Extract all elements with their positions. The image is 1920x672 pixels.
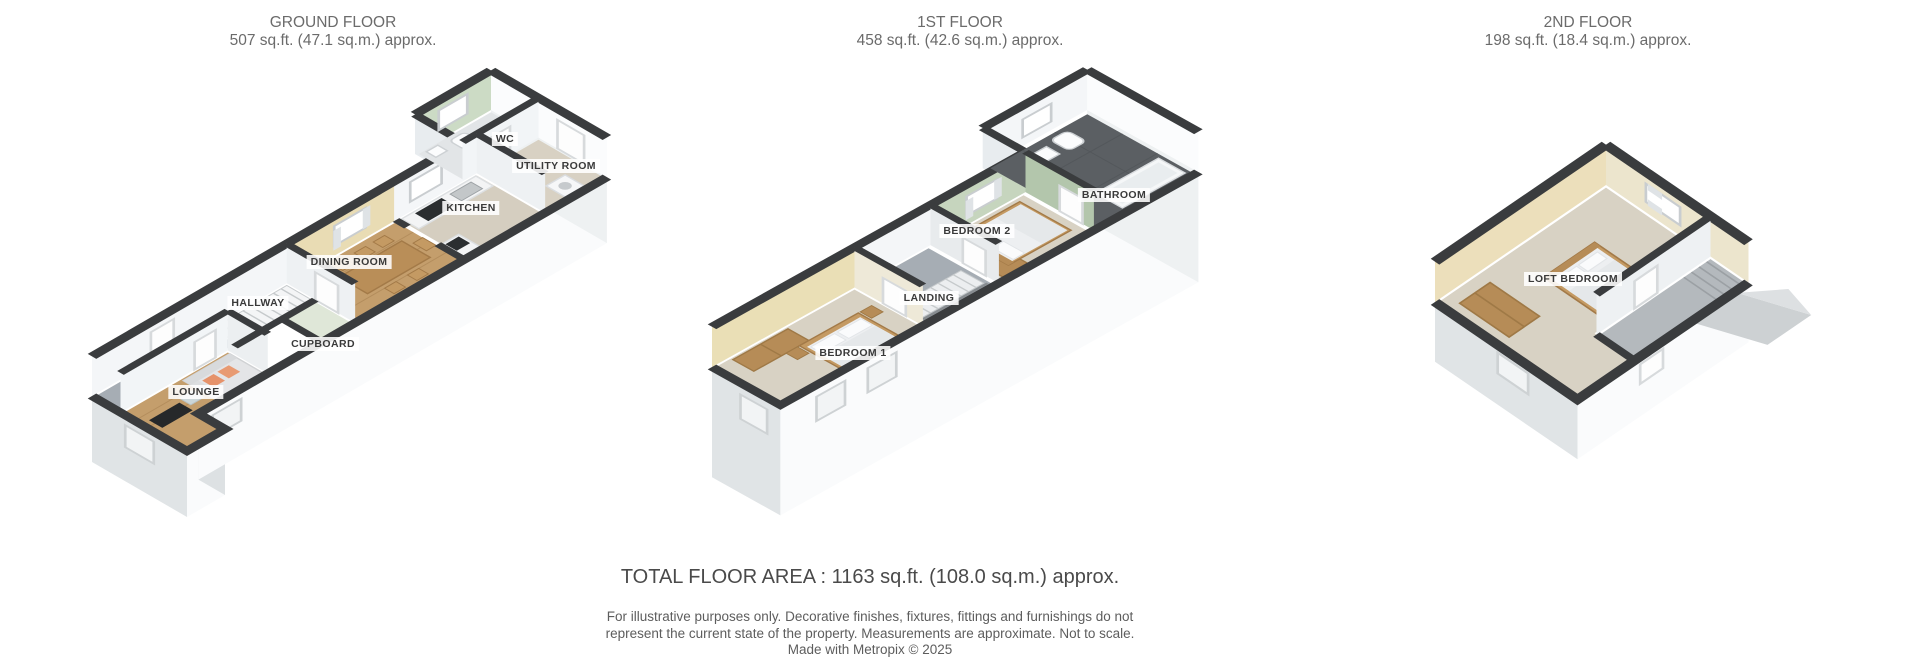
room-label-kitchen: KITCHEN [442,201,499,215]
ground-floor-header: GROUND FLOOR 507 sq.ft. (47.1 sq.m.) app… [163,14,503,50]
second-floor-area: 198 sq.ft. (18.4 sq.m.) approx. [1418,32,1758,50]
first-floor-title: 1ST FLOOR [790,14,1130,32]
room-label-dining-room: DINING ROOM [307,255,392,269]
disclaimer: For illustrative purposes only. Decorati… [606,609,1135,659]
total-floor-area: TOTAL FLOOR AREA : 1163 sq.ft. (108.0 sq… [621,566,1119,589]
room-label-bedroom-2: BEDROOM 2 [939,224,1014,238]
first-floor-area: 458 sq.ft. (42.6 sq.m.) approx. [790,32,1130,50]
room-label-cupboard: CUPBOARD [287,337,359,351]
room-label-utility-room: UTILITY ROOM [512,159,600,173]
disclaimer-line-1: For illustrative purposes only. Decorati… [606,609,1135,626]
second-floor-header: 2ND FLOOR 198 sq.ft. (18.4 sq.m.) approx… [1418,14,1758,50]
room-label-bedroom-1: BEDROOM 1 [815,346,890,360]
ground-floor-plan [0,70,725,517]
room-label-lounge: LOUNGE [168,385,223,399]
disclaimer-line-3: Made with Metropix © 2025 [606,642,1135,659]
second-floor-plan [1362,145,1833,467]
disclaimer-line-2: represent the current state of the prope… [606,626,1135,643]
room-label-hallway: HALLWAY [227,296,288,310]
floorplan-page: GROUND FLOOR 507 sq.ft. (47.1 sq.m.) app… [0,0,1920,672]
ground-floor-title: GROUND FLOOR [163,14,503,32]
first-floor-header: 1ST FLOOR 458 sq.ft. (42.6 sq.m.) approx… [790,14,1130,50]
room-label-landing: LANDING [900,291,959,305]
ground-floor-area: 507 sq.ft. (47.1 sq.m.) approx. [163,32,503,50]
second-floor-title: 2ND FLOOR [1418,14,1758,32]
room-label-bathroom: BATHROOM [1078,188,1150,202]
room-label-wc: WC [492,132,518,146]
room-label-loft-bedroom: LOFT BEDROOM [1524,272,1622,286]
